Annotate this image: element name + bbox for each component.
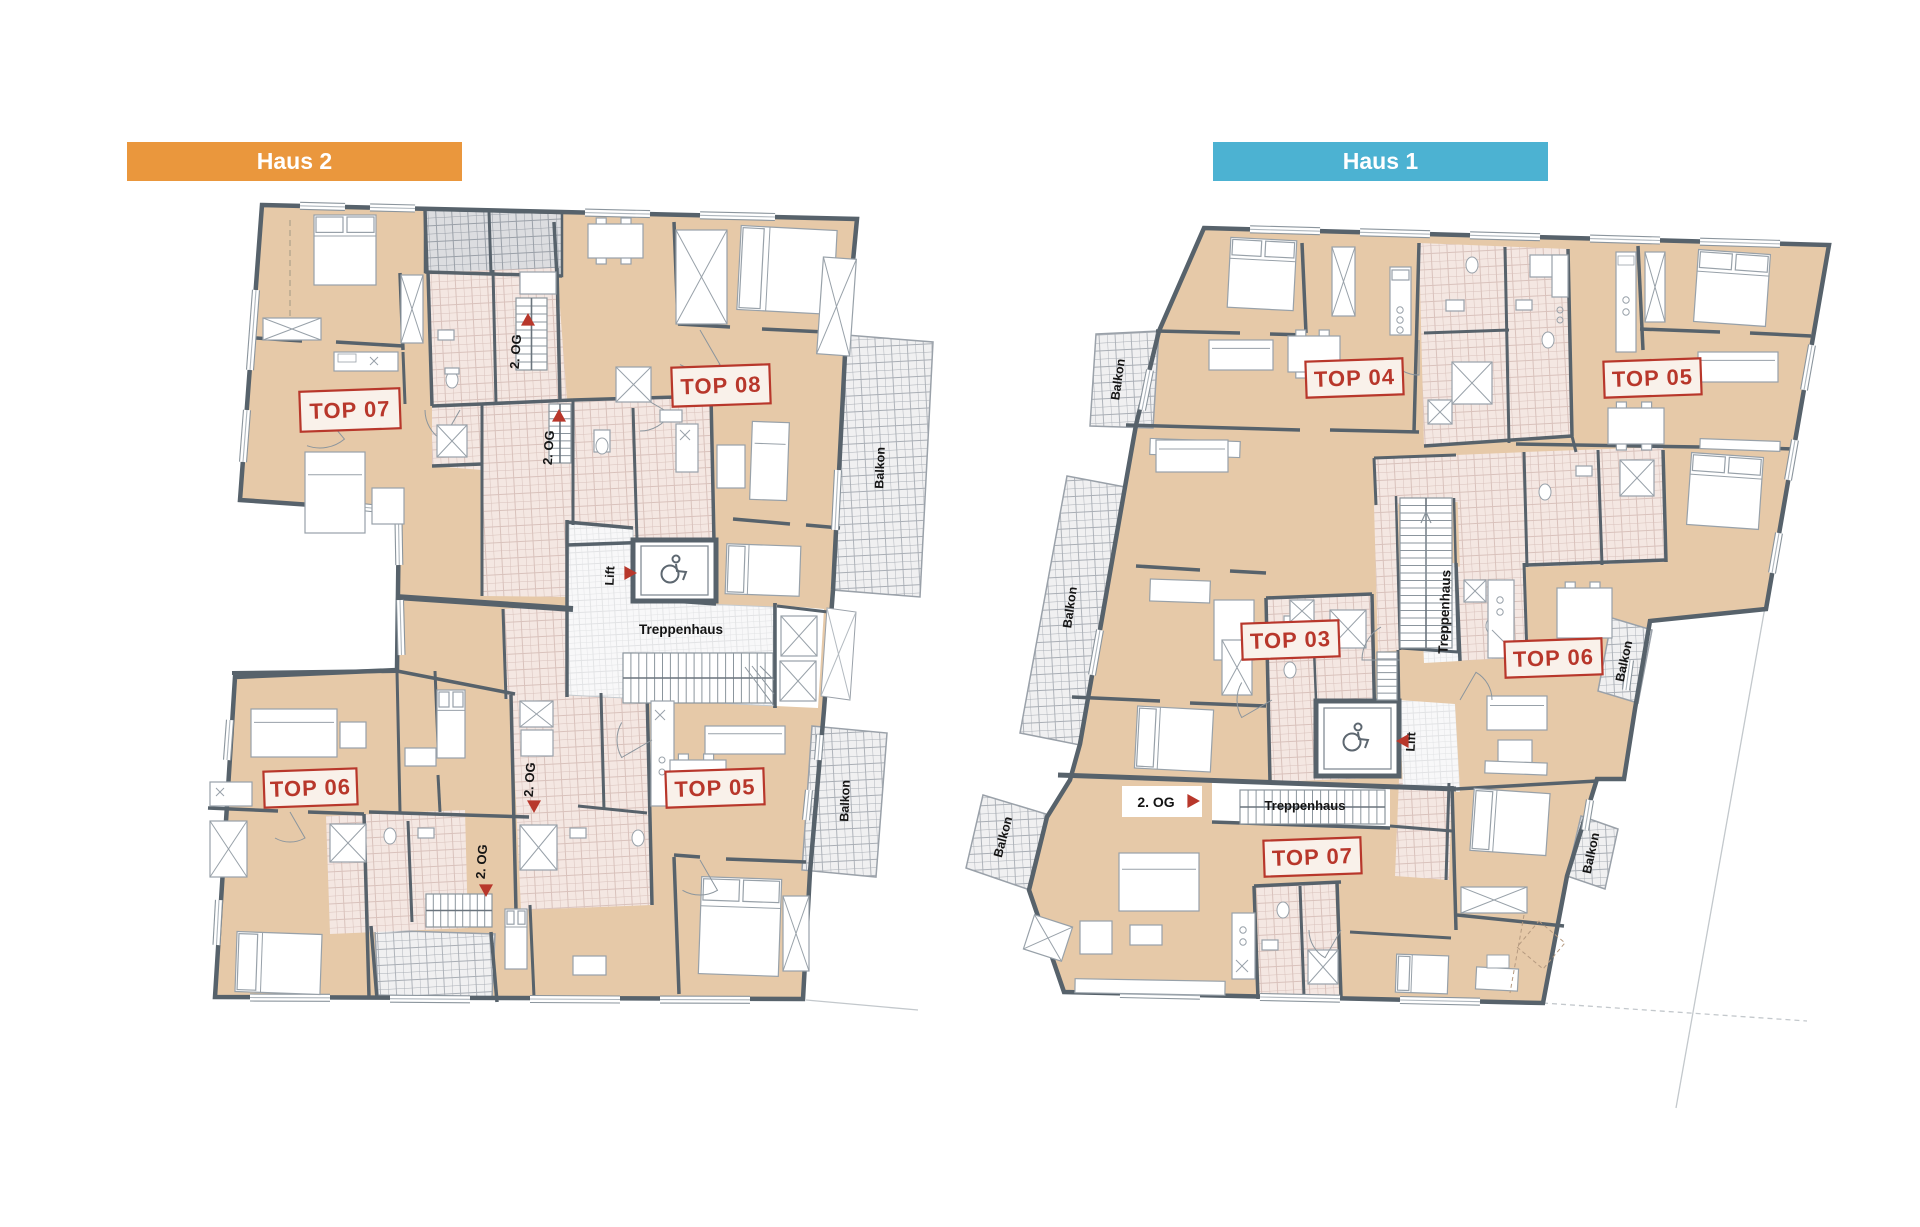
- svg-text:2. OG: 2. OG: [473, 844, 490, 880]
- svg-text:2. OG: 2. OG: [540, 430, 557, 466]
- svg-text:Treppenhaus: Treppenhaus: [1265, 798, 1346, 813]
- svg-text:2. OG: 2. OG: [1137, 794, 1174, 810]
- svg-text:2. OG: 2. OG: [507, 334, 524, 370]
- svg-text:TOP 05: TOP 05: [674, 774, 756, 802]
- svg-text:TOP 06: TOP 06: [1513, 644, 1595, 672]
- svg-text:Haus 1: Haus 1: [1343, 148, 1419, 174]
- svg-text:Treppenhaus: Treppenhaus: [639, 622, 723, 637]
- svg-text:TOP 06: TOP 06: [270, 774, 352, 802]
- svg-text:Lift: Lift: [603, 565, 618, 586]
- svg-text:Haus 2: Haus 2: [257, 148, 332, 174]
- svg-text:TOP 05: TOP 05: [1612, 364, 1694, 392]
- svg-text:Balkon: Balkon: [872, 447, 887, 489]
- svg-text:Treppenhaus: Treppenhaus: [1436, 570, 1454, 655]
- svg-text:TOP 07: TOP 07: [309, 396, 391, 424]
- svg-text:2. OG: 2. OG: [521, 762, 538, 798]
- svg-text:TOP 04: TOP 04: [1314, 364, 1396, 392]
- svg-text:TOP 03: TOP 03: [1250, 626, 1332, 654]
- svg-text:TOP 08: TOP 08: [680, 372, 762, 400]
- svg-text:TOP 07: TOP 07: [1272, 843, 1354, 871]
- svg-text:Balkon: Balkon: [837, 780, 852, 822]
